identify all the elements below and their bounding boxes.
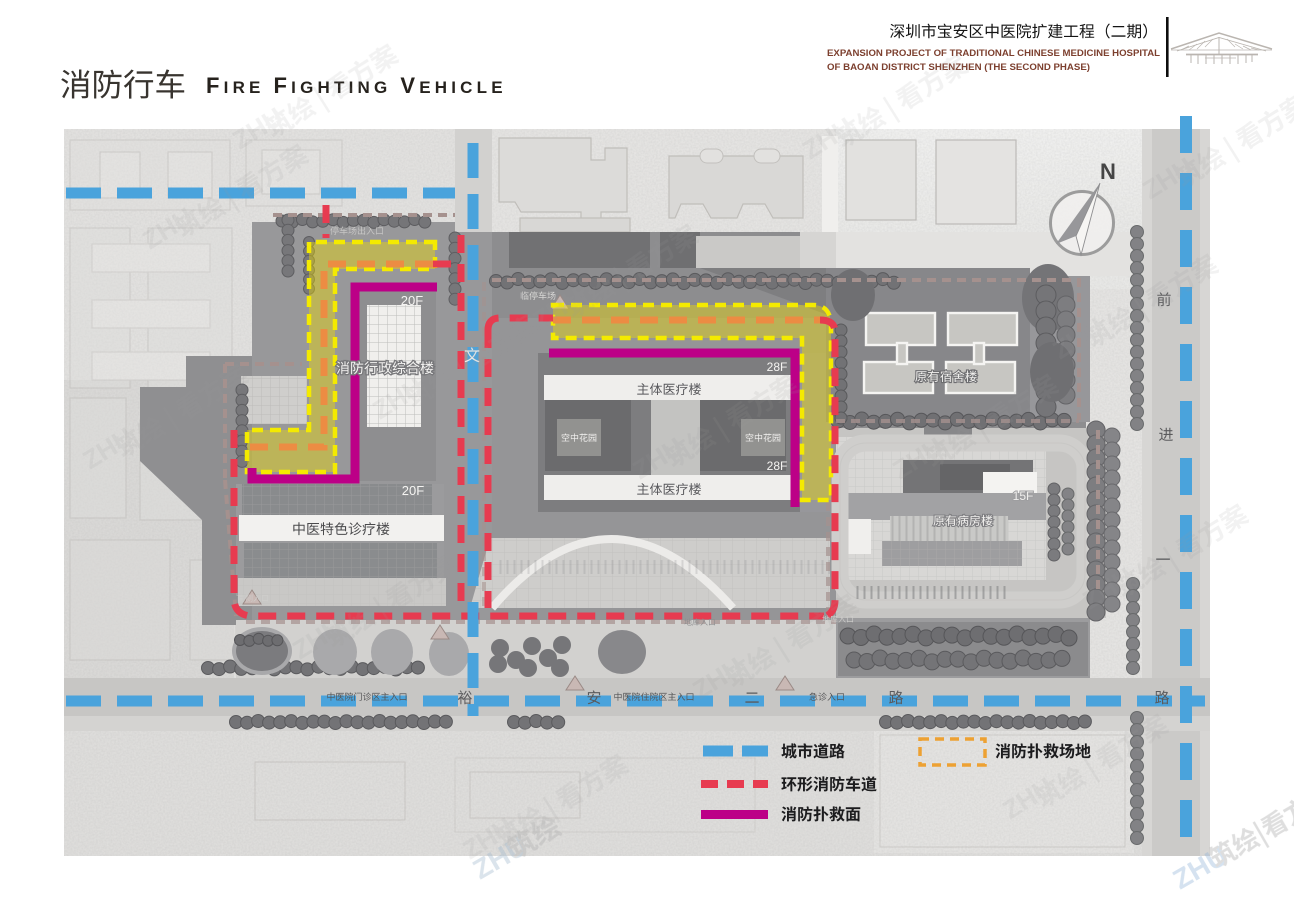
svg-text:20F: 20F	[401, 293, 423, 308]
svg-text:28F: 28F	[767, 360, 788, 374]
svg-text:N: N	[1100, 159, 1116, 184]
svg-text:EXPANSION PROJECT OF TRADITION: EXPANSION PROJECT OF TRADITIONAL CHINESE…	[827, 48, 1160, 59]
svg-text:FIRE FIGHTING VEHICLE: FIRE FIGHTING VEHICLE	[206, 73, 507, 98]
svg-text:20F: 20F	[402, 483, 424, 498]
svg-text:15F: 15F	[1013, 489, 1034, 503]
svg-text:28F: 28F	[767, 459, 788, 473]
